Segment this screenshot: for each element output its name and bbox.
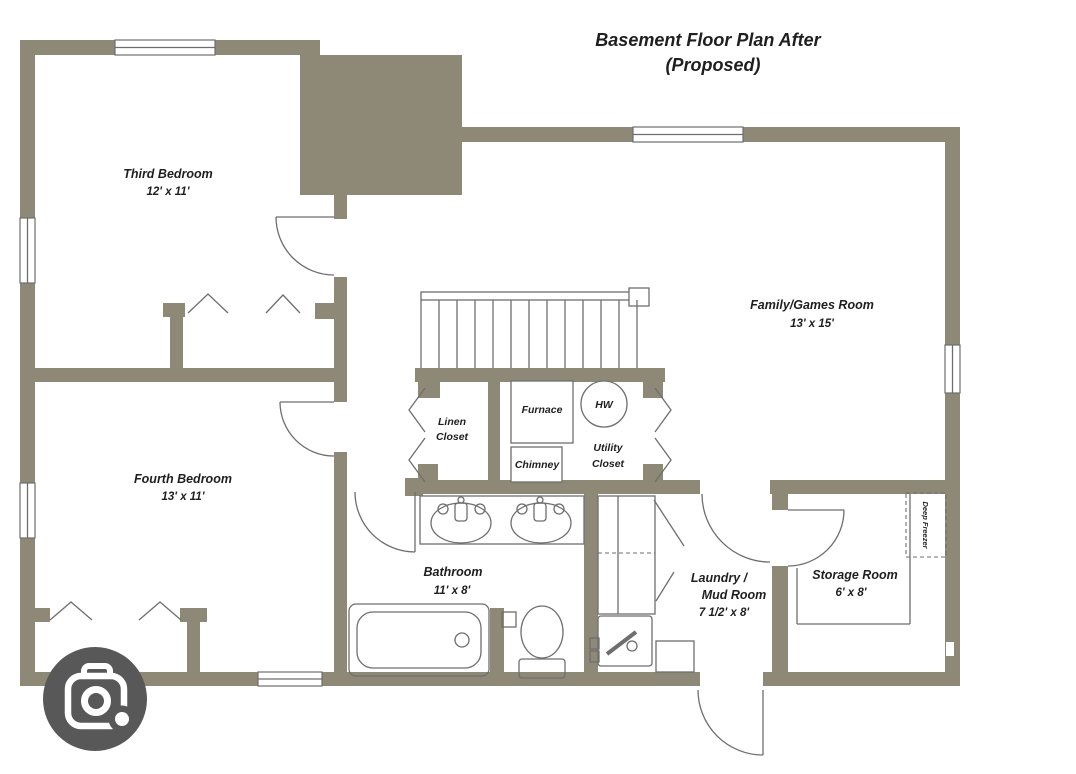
laundry-sink — [590, 616, 652, 666]
paper-holder — [502, 612, 516, 627]
bedroom-divider-wall — [20, 368, 347, 382]
toilet — [502, 606, 565, 678]
bathroom-door — [355, 492, 415, 552]
sink-right — [511, 503, 571, 543]
labels: Basement Floor Plan After (Proposed) Thi… — [123, 30, 930, 619]
room-label-utility-closet-2: Closet — [592, 458, 625, 470]
laundry-appliance — [656, 641, 694, 672]
floor-plan: Basement Floor Plan After (Proposed) Thi… — [0, 0, 1076, 774]
solid-block — [300, 55, 462, 195]
furnace-label: Furnace — [522, 404, 563, 416]
interior-walls — [20, 195, 960, 676]
room-label-fourth-bedroom: Fourth Bedroom — [134, 472, 232, 486]
room-dims-bathroom: 11' x 8' — [434, 585, 472, 597]
stair-newel — [629, 288, 649, 306]
window — [20, 483, 35, 538]
plan-title-line2: (Proposed) — [665, 55, 760, 75]
bathtub — [349, 604, 489, 676]
sink-left — [431, 503, 491, 543]
window — [258, 672, 322, 686]
laundry-cabinet — [598, 496, 655, 614]
room-label-laundry-1: Laundry / — [691, 571, 749, 585]
laundry-door — [702, 494, 770, 562]
water-heater-label: HW — [595, 399, 614, 411]
tub-drain — [455, 633, 469, 647]
window — [20, 218, 35, 283]
room-label-third-bedroom: Third Bedroom — [123, 167, 213, 181]
deep-freezer-label: Deep Freezer — [921, 501, 930, 549]
fourth-bedroom-door — [280, 402, 334, 456]
bathroom-vanity — [420, 496, 584, 544]
room-label-linen-closet-1: Linen — [438, 416, 466, 428]
screenshot-canvas: Basement Floor Plan After (Proposed) Thi… — [0, 0, 1076, 774]
room-dims-third-bedroom: 12' x 11' — [147, 186, 191, 198]
room-label-linen-closet-2: Closet — [436, 431, 469, 443]
room-label-laundry-2: Mud Room — [702, 588, 767, 602]
room-dims-fourth-bedroom: 13' x 11' — [162, 491, 206, 503]
exterior-door — [698, 690, 763, 755]
room-dims-family-room: 13' x 15' — [790, 318, 835, 330]
room-label-utility-closet-1: Utility — [593, 442, 623, 454]
window — [633, 127, 743, 142]
wall-notch — [946, 642, 954, 656]
room-dims-laundry: 7 1/2' x 8' — [699, 607, 750, 619]
exterior-walls — [20, 40, 960, 686]
storage-room-outline — [797, 494, 910, 624]
room-label-storage: Storage Room — [812, 568, 897, 582]
plan-title-line1: Basement Floor Plan After — [595, 30, 821, 50]
window — [115, 40, 215, 55]
storage-door — [788, 510, 844, 566]
staircase — [421, 288, 649, 368]
google-lens-button[interactable] — [43, 647, 147, 751]
stair-treads — [421, 300, 637, 368]
room-label-bathroom: Bathroom — [423, 565, 482, 579]
third-bedroom-door — [276, 217, 334, 275]
chimney-label: Chimney — [515, 459, 561, 471]
stair-rail — [421, 292, 633, 300]
room-dims-storage: 6' x 8' — [835, 587, 867, 599]
window — [945, 345, 960, 393]
room-label-family-room: Family/Games Room — [750, 298, 874, 312]
